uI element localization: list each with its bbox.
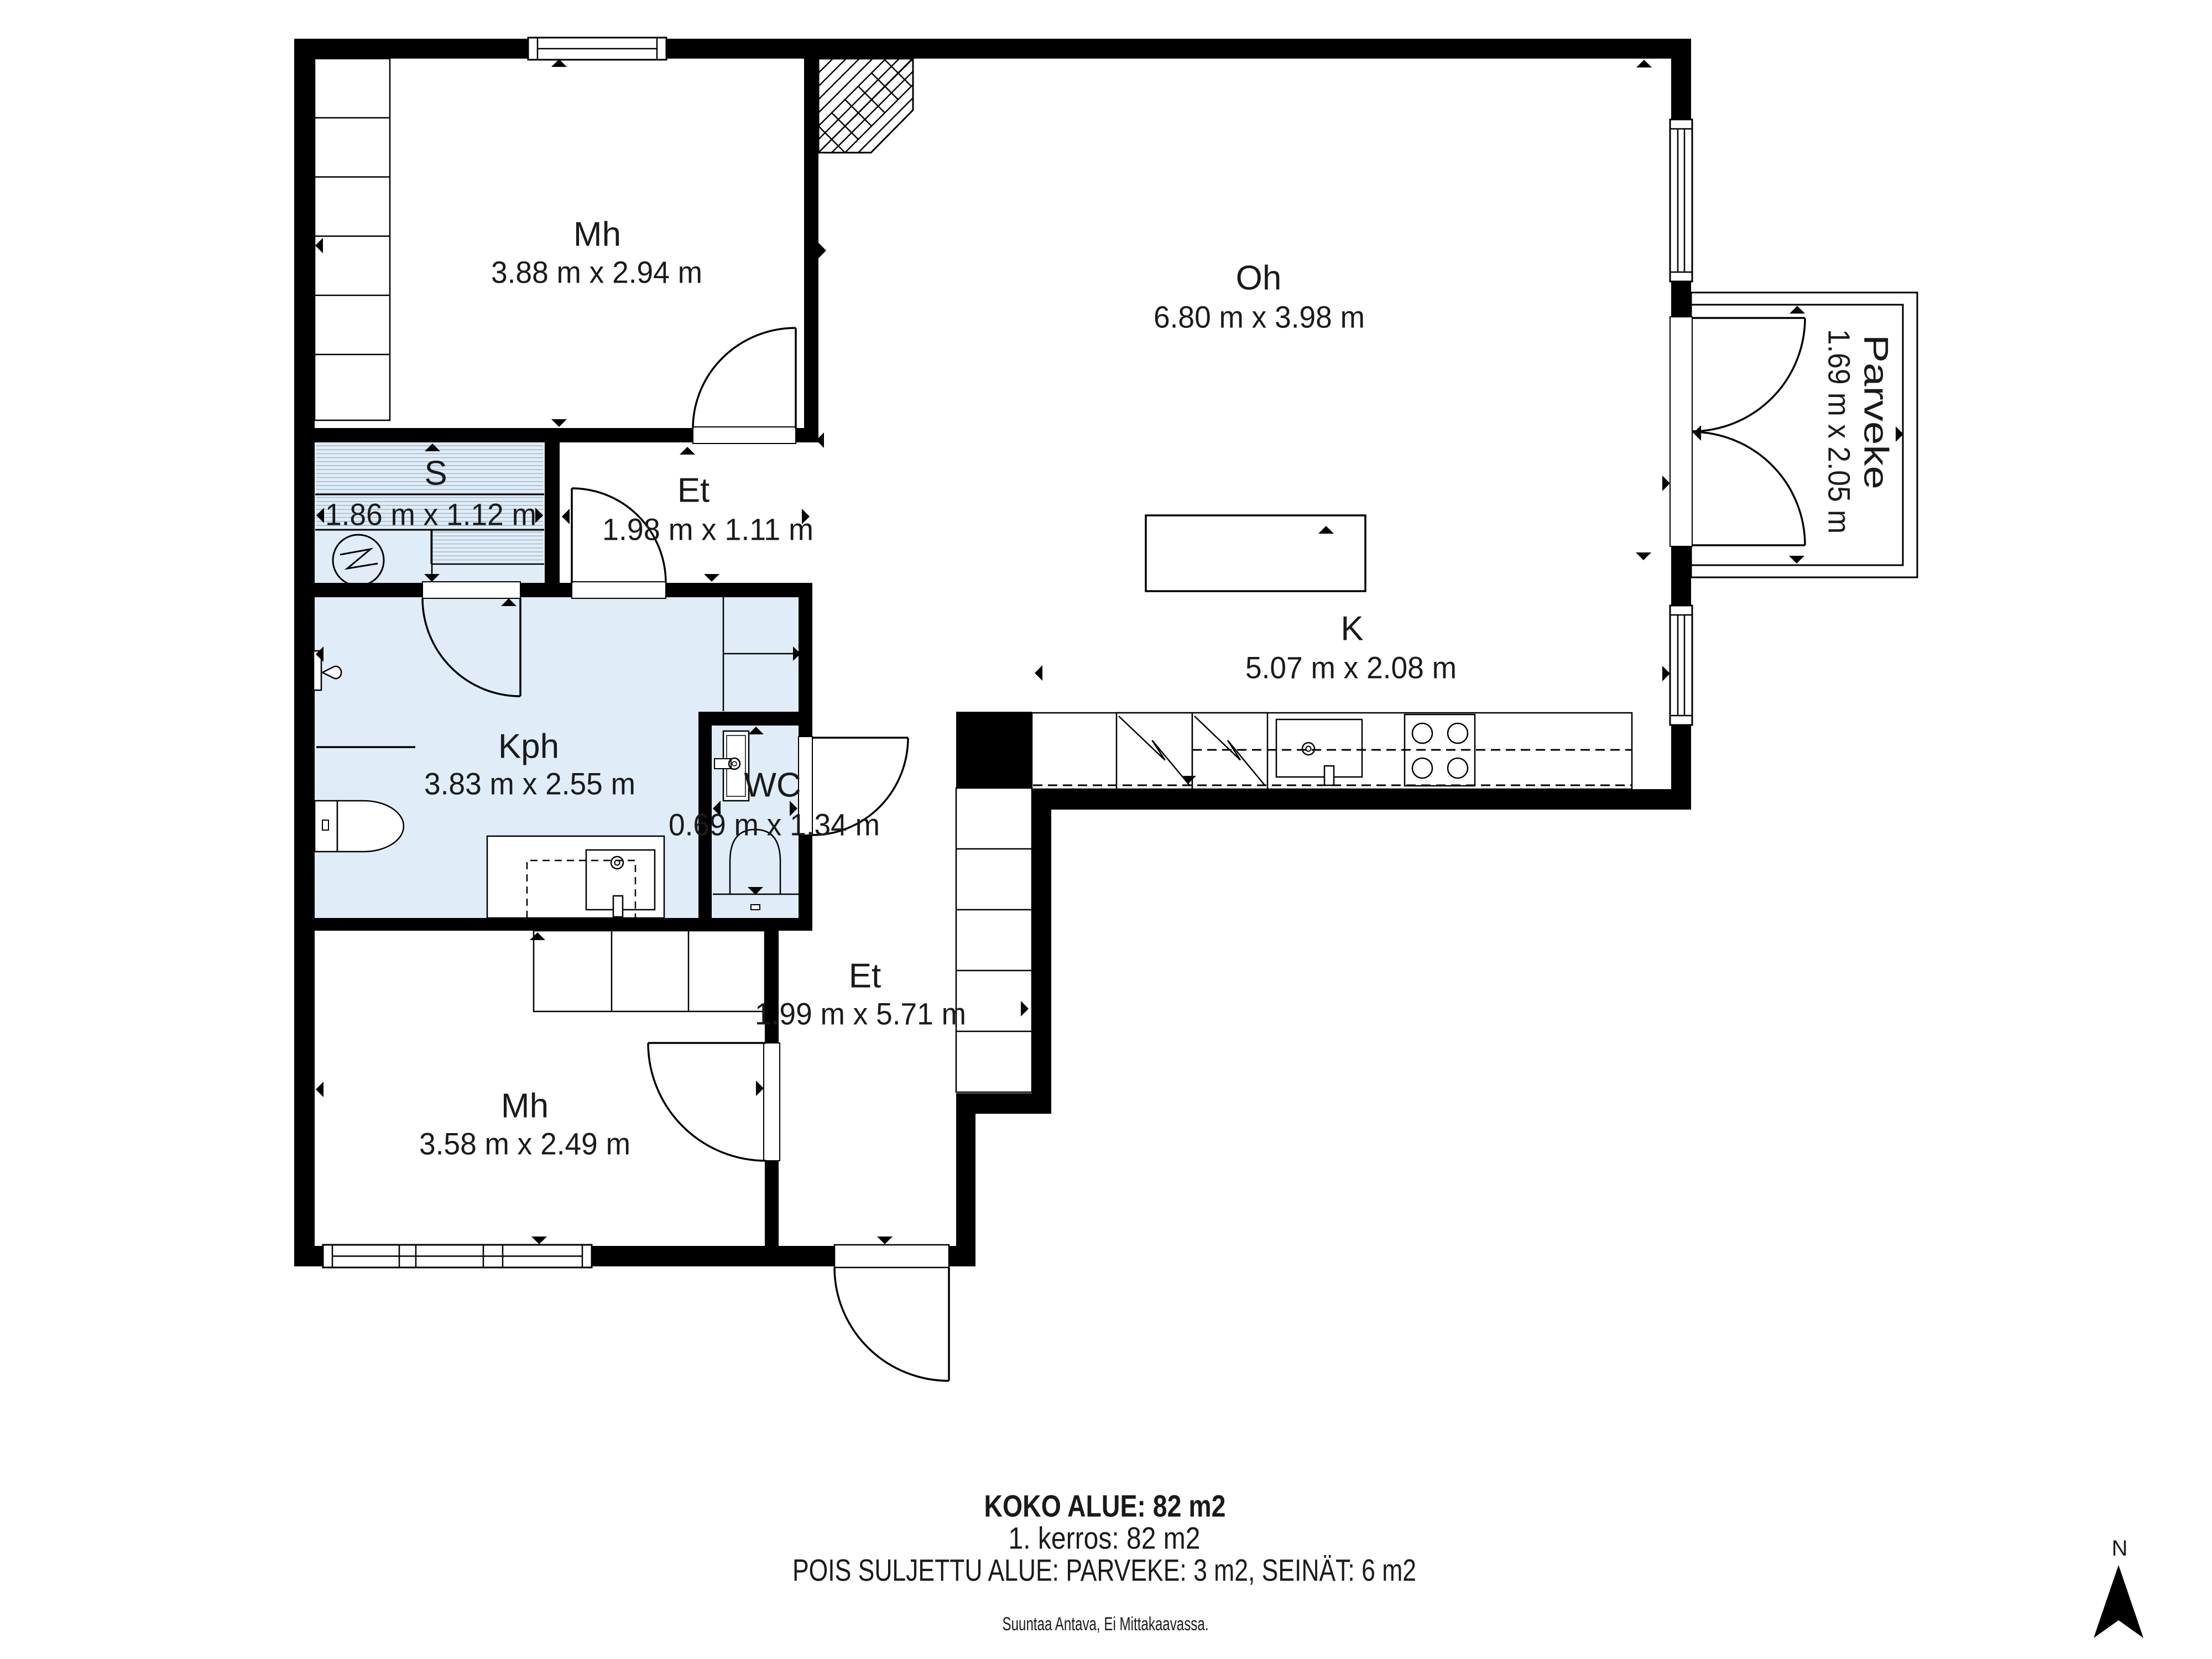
svg-text:Mh: Mh [573,216,621,254]
svg-text:1.99 m x 5.71 m: 1.99 m x 5.71 m [755,997,966,1031]
svg-text:POIS SULJETTU ALUE: PARVEKE: 3: POIS SULJETTU ALUE: PARVEKE: 3 m2, SEINÄ… [792,1553,1416,1588]
svg-text:Parveke: Parveke [1857,335,1895,489]
svg-text:Mh: Mh [501,1087,549,1125]
svg-text:6.80 m x 3.98 m: 6.80 m x 3.98 m [1154,300,1365,335]
svg-text:5.07 m x 2.08 m: 5.07 m x 2.08 m [1245,650,1457,685]
svg-text:Et: Et [849,957,881,995]
svg-text:3.58 m x 2.49 m: 3.58 m x 2.49 m [419,1126,630,1161]
svg-text:S: S [424,455,447,493]
svg-text:1. kerros: 82 m2: 1. kerros: 82 m2 [1009,1521,1201,1556]
svg-text:Oh: Oh [1236,259,1282,298]
svg-text:KOKO ALUE: 82 m2: KOKO ALUE: 82 m2 [984,1489,1226,1524]
svg-text:WC: WC [744,766,801,805]
svg-text:Kph: Kph [498,728,559,766]
svg-text:K: K [1340,610,1363,648]
svg-text:3.83 m x 2.55 m: 3.83 m x 2.55 m [424,766,635,801]
svg-text:1.69 m x 2.05 m: 1.69 m x 2.05 m [1822,329,1857,534]
svg-text:1.98 m x 1.11 m: 1.98 m x 1.11 m [602,512,813,547]
svg-text:3.88 m x 2.94 m: 3.88 m x 2.94 m [491,255,702,290]
svg-text:Et: Et [677,472,710,510]
svg-text:Suuntaa Antava, Ei Mittakaavas: Suuntaa Antava, Ei Mittakaavassa. [1003,1614,1209,1635]
svg-text:0.69 m x 1.34 m: 0.69 m x 1.34 m [669,807,880,842]
svg-text:1.86 m x 1.12 m: 1.86 m x 1.12 m [325,497,536,532]
svg-text:N: N [2112,1536,2128,1561]
